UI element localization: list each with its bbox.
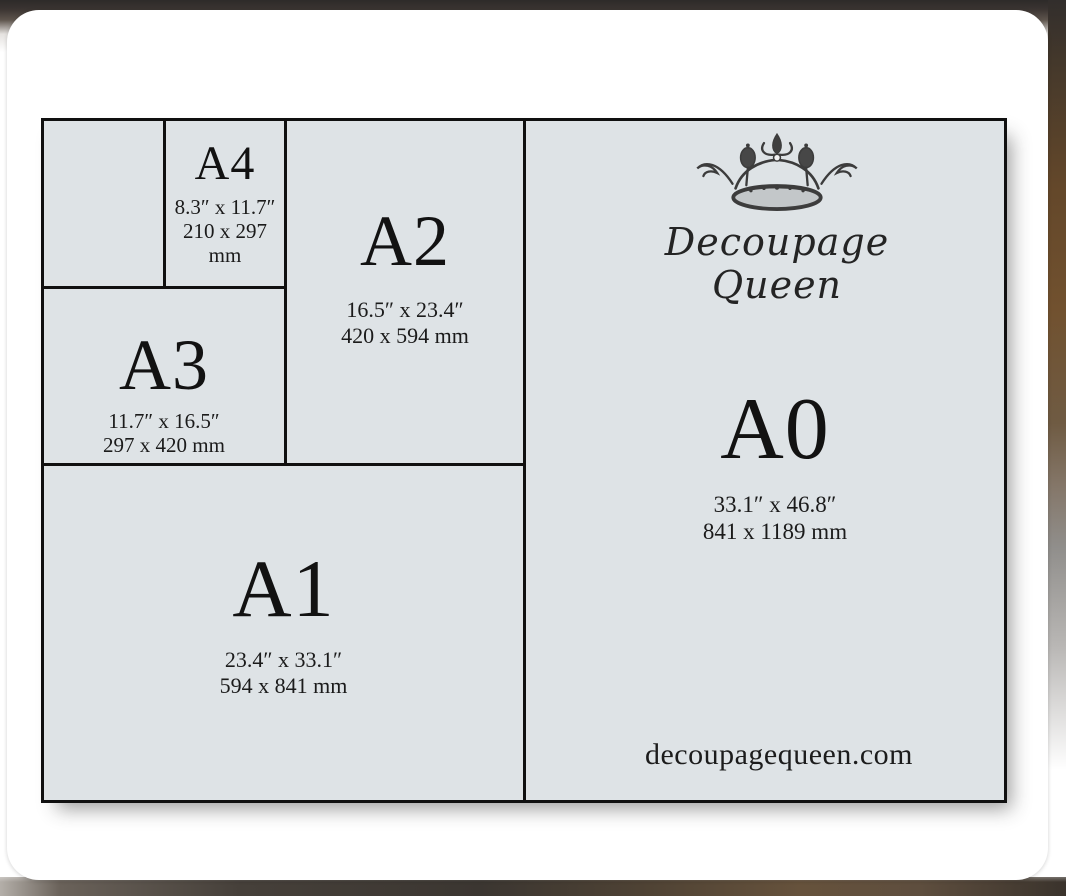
size-inches-a1: 23.4″ x 33.1″ xyxy=(220,647,348,673)
page: { "colors": { "diagram_bg": "#dee3e6", "… xyxy=(0,0,1066,896)
size-label-a2: A2 xyxy=(360,205,450,278)
blank-box xyxy=(44,121,163,286)
size-inches-a4: 8.3″ x 11.7″ xyxy=(166,195,284,219)
size-dims-a2: 16.5″ x 23.4″ 420 x 594 mm xyxy=(341,297,469,349)
size-mm-a2: 420 x 594 mm xyxy=(341,323,469,349)
size-label-a4: A4 xyxy=(195,140,256,189)
size-box-a0: Decoupage Queen A0 33.1″ x 46.8″ 841 x 1… xyxy=(526,121,1004,800)
size-label-a0: A0 xyxy=(536,385,1014,475)
size-mm-a0: 841 x 1189 mm xyxy=(536,518,1014,545)
size-text-a0: A0 33.1″ x 46.8″ 841 x 1189 mm xyxy=(536,385,1014,545)
size-dims-a3: 11.7″ x 16.5″ 297 x 420 mm xyxy=(103,409,225,457)
size-label-a3: A3 xyxy=(119,329,209,402)
size-label-a1: A1 xyxy=(232,547,334,631)
white-card: A4 8.3″ x 11.7″ 210 x 297 mm A2 16.5″ x … xyxy=(7,10,1048,880)
size-inches-a0: 33.1″ x 46.8″ xyxy=(536,491,1014,518)
brand-wordmark: Decoupage Queen xyxy=(538,221,1016,307)
size-box-a1: A1 23.4″ x 33.1″ 594 x 841 mm xyxy=(44,466,523,800)
crown-icon xyxy=(682,127,872,219)
size-box-a3: A3 11.7″ x 16.5″ 297 x 420 mm xyxy=(44,289,284,463)
size-inches-a2: 16.5″ x 23.4″ xyxy=(341,297,469,323)
size-box-a4: A4 8.3″ x 11.7″ 210 x 297 mm xyxy=(166,121,284,286)
size-mm-a1: 594 x 841 mm xyxy=(220,673,348,699)
size-mm-a3: 297 x 420 mm xyxy=(103,433,225,457)
website-text: decoupagequeen.com xyxy=(540,738,1018,772)
paper-size-diagram: A4 8.3″ x 11.7″ 210 x 297 mm A2 16.5″ x … xyxy=(41,118,1007,803)
size-dims-a4: 8.3″ x 11.7″ 210 x 297 mm xyxy=(166,195,284,267)
brand-line1: Decoupage xyxy=(538,221,1016,264)
background-right-blur xyxy=(1048,0,1066,770)
size-dims-a0: 33.1″ x 46.8″ 841 x 1189 mm xyxy=(536,491,1014,545)
size-mm-a4: 210 x 297 mm xyxy=(166,219,284,267)
size-inches-a3: 11.7″ x 16.5″ xyxy=(103,409,225,433)
size-box-a2: A2 16.5″ x 23.4″ 420 x 594 mm xyxy=(287,121,523,463)
size-dims-a1: 23.4″ x 33.1″ 594 x 841 mm xyxy=(220,647,348,699)
brand-line2: Queen xyxy=(538,264,1016,307)
